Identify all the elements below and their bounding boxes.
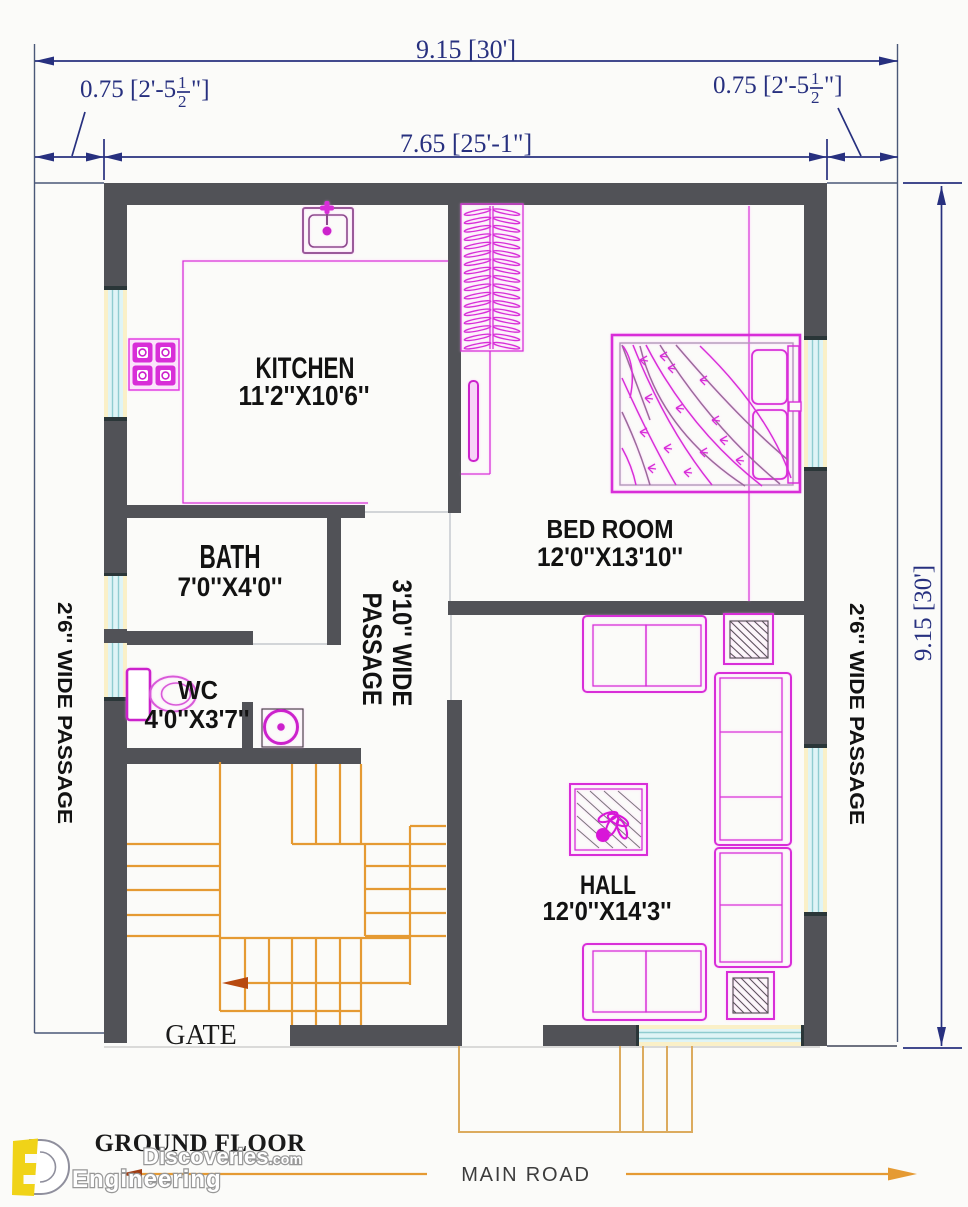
- svg-text:2'6'' WIDE PASSAGE: 2'6'' WIDE PASSAGE: [845, 603, 867, 825]
- svg-text:1: 1: [178, 73, 187, 92]
- svg-text:3'10'' WIDE: 3'10'' WIDE: [387, 580, 417, 707]
- svg-text:PASSAGE: PASSAGE: [357, 593, 387, 706]
- svg-text:2: 2: [811, 88, 820, 107]
- svg-text:1: 1: [811, 69, 820, 88]
- svg-text:7'0''X4'0'': 7'0''X4'0'': [178, 572, 283, 602]
- svg-text:BED ROOM: BED ROOM: [547, 514, 674, 544]
- svg-text:9.15 [30']: 9.15 [30']: [910, 565, 937, 661]
- svg-text:MAIN ROAD: MAIN ROAD: [461, 1164, 591, 1186]
- svg-text:12'0''X14'3'': 12'0''X14'3'': [543, 896, 672, 926]
- svg-text:BATH: BATH: [200, 538, 261, 575]
- svg-text:"]: "]: [824, 72, 843, 99]
- svg-text:"]: "]: [191, 76, 210, 103]
- svg-text:4'0''X3'7'': 4'0''X3'7'': [145, 704, 250, 734]
- svg-text:11'2''X10'6'': 11'2''X10'6'': [239, 380, 370, 411]
- svg-text:GATE: GATE: [165, 1020, 237, 1051]
- svg-text:Engineering: Engineering: [72, 1166, 222, 1193]
- svg-text:0.75 [2'-5: 0.75 [2'-5: [80, 76, 176, 103]
- svg-text:2'6'' WIDE PASSAGE: 2'6'' WIDE PASSAGE: [53, 602, 75, 824]
- svg-text:7.65 [25'-1"]: 7.65 [25'-1"]: [400, 129, 532, 158]
- svg-text:0.75 [2'-5: 0.75 [2'-5: [713, 72, 809, 99]
- svg-text:12'0''X13'10'': 12'0''X13'10'': [537, 542, 683, 572]
- svg-text:WC: WC: [178, 675, 218, 705]
- svg-text:9.15 [30']: 9.15 [30']: [416, 35, 516, 64]
- svg-text:2: 2: [178, 92, 187, 111]
